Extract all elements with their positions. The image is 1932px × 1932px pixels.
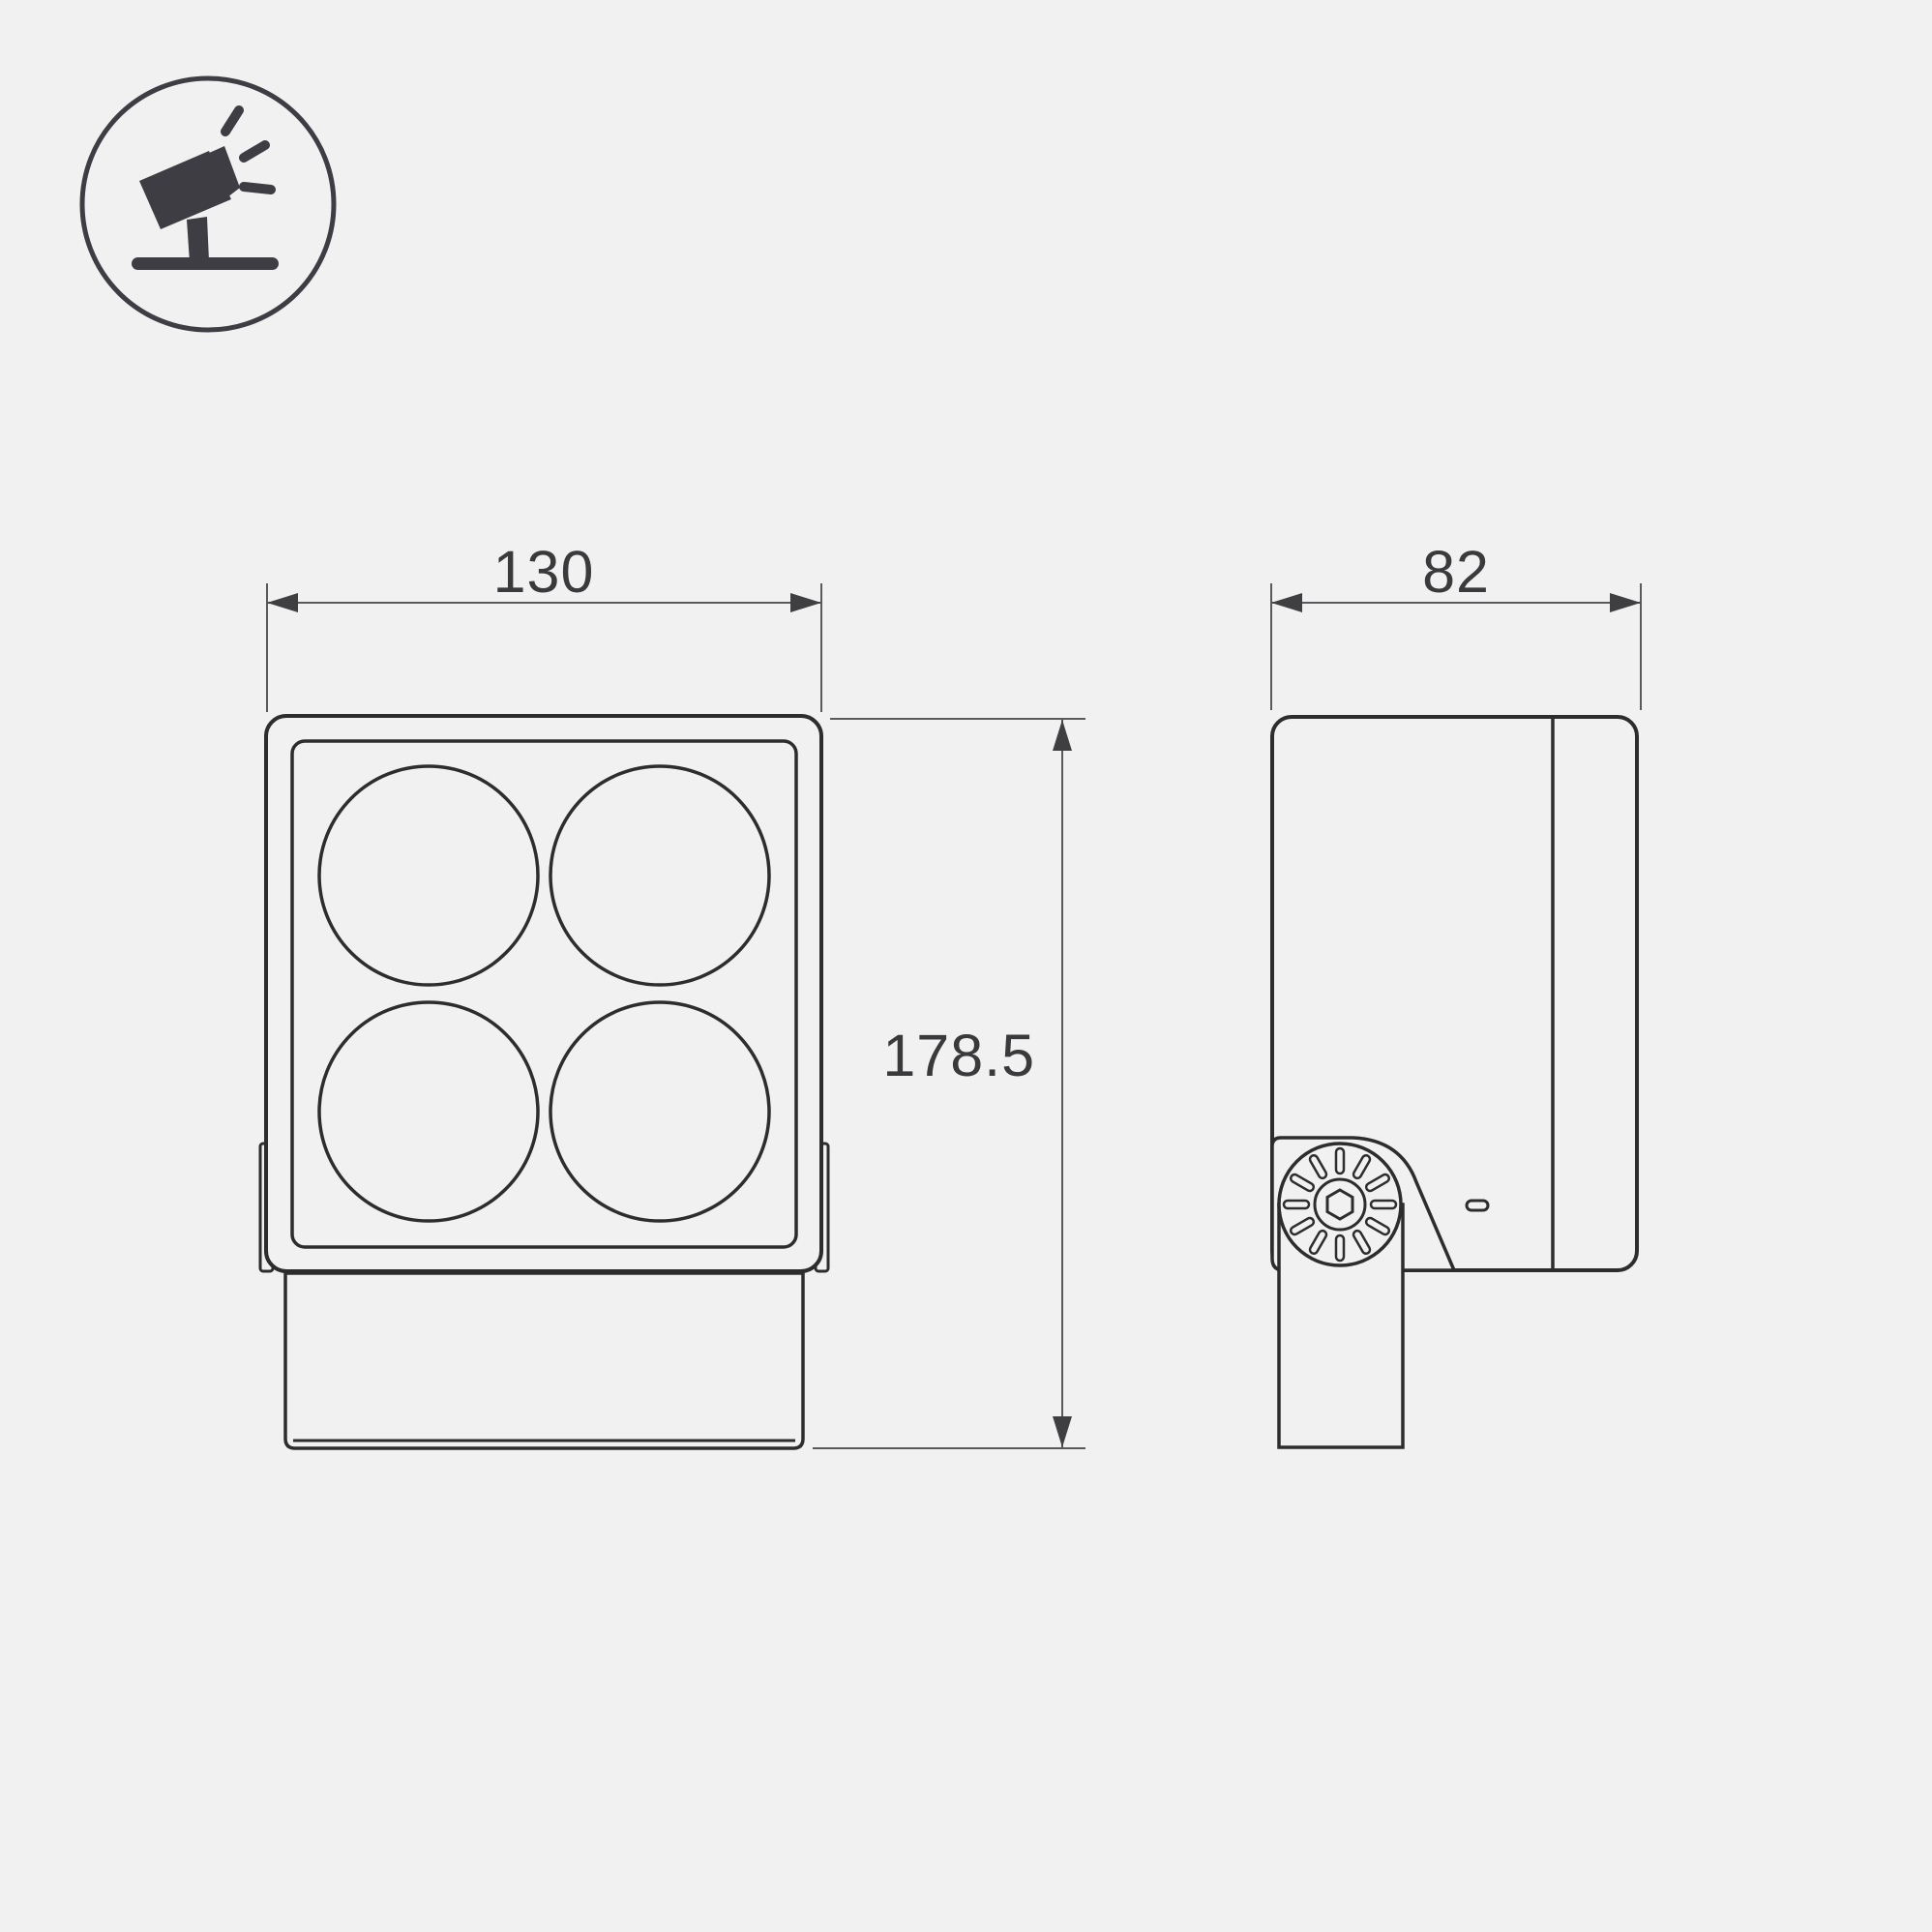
height-arrow-bottom: [1053, 1416, 1072, 1447]
front-base-block: [285, 1273, 803, 1448]
icon-stand-post: [187, 217, 209, 262]
front-view: [260, 716, 828, 1448]
depth-arrow-right: [1610, 593, 1641, 612]
depth-dimension-label: 82: [1422, 539, 1490, 605]
icon-ray-bottom: [244, 187, 271, 190]
height-dimension-label: 178.5: [882, 1023, 1035, 1088]
height-arrow-top: [1053, 720, 1072, 751]
icon-ground-bar: [132, 257, 279, 270]
side-view: [1272, 717, 1637, 1447]
depth-dimension: 82: [1271, 539, 1641, 710]
height-dimension: 178.5: [813, 719, 1085, 1448]
width-arrow-left: [267, 593, 298, 612]
icon-ray-top: [225, 110, 239, 132]
width-arrow-right: [790, 593, 821, 612]
icon-lamp-glyph: [132, 146, 279, 270]
width-dimension: 130: [267, 539, 821, 712]
technical-drawing-page: 130 82 178.5: [0, 0, 1932, 1932]
drawing-svg: 130 82 178.5: [0, 0, 1932, 1932]
knob-inner-ring: [1315, 1179, 1365, 1230]
icon-ray-middle: [244, 145, 265, 158]
depth-arrow-left: [1271, 593, 1302, 612]
floodlight-icon: [82, 78, 334, 330]
width-dimension-label: 130: [493, 539, 595, 605]
side-adjustment-knob: [1279, 1144, 1401, 1265]
